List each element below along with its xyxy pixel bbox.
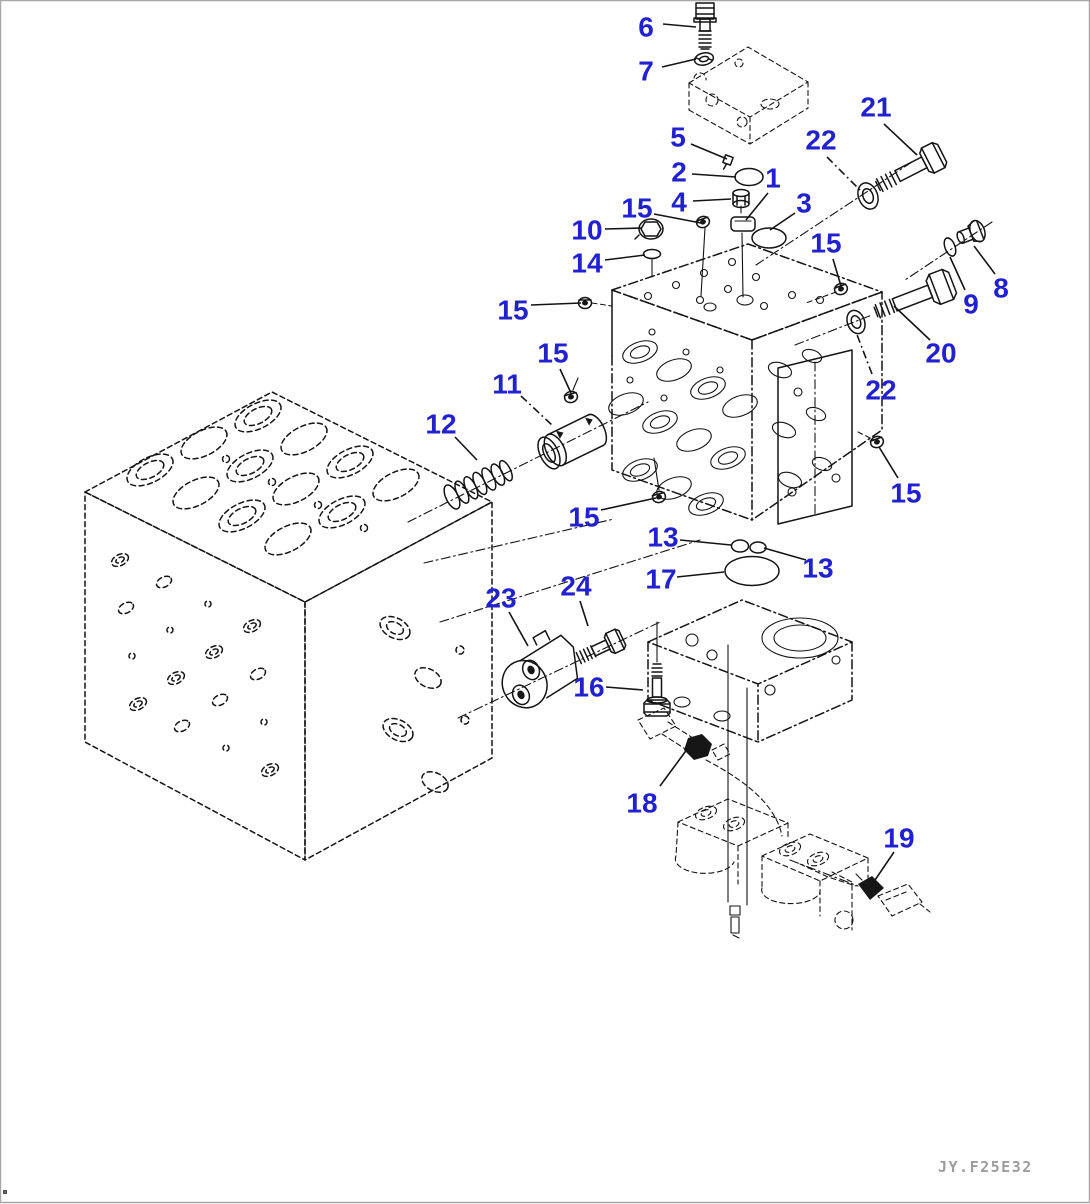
- o-ring-3: [752, 228, 786, 248]
- spool-bore: [720, 390, 761, 421]
- callout-15: 15: [568, 498, 656, 533]
- spool-bore: [688, 372, 729, 403]
- port-ring: [314, 490, 370, 535]
- set-screw-15: [651, 490, 666, 504]
- port-ring: [122, 448, 178, 493]
- port-hole: [211, 692, 230, 708]
- port-hole: [376, 612, 414, 644]
- connector-19: [856, 874, 884, 900]
- callout-number: 22: [805, 125, 836, 156]
- callout-11: 11: [492, 369, 553, 427]
- port-hole: [173, 718, 192, 734]
- callout-24: 24: [560, 571, 592, 627]
- reference-valve-block-phantom: [85, 392, 492, 860]
- port-hole: [259, 761, 280, 779]
- port-hole: [811, 455, 834, 473]
- page-corner-mark: [3, 1190, 7, 1194]
- bolt-20: [870, 268, 958, 327]
- callout-19: 19: [871, 823, 915, 887]
- port-ring: [214, 494, 270, 539]
- washer-7: [693, 51, 714, 67]
- spring-12: [441, 457, 516, 511]
- bushing-4: [733, 190, 749, 208]
- port-ring: [168, 471, 224, 516]
- callout-number: 15: [621, 193, 652, 224]
- port-hole: [204, 600, 212, 608]
- callout-number: 9: [963, 289, 979, 320]
- sleeve-11: [533, 411, 610, 472]
- callout-13: 13: [647, 522, 731, 553]
- port-hole: [117, 600, 136, 616]
- port-hole: [411, 664, 444, 693]
- bolt-24: [574, 628, 627, 668]
- parts-diagram-page: 6721225213415101415892015221511121515131…: [0, 0, 1090, 1204]
- fitting-18-hex: [684, 734, 712, 760]
- callout-number: 13: [802, 553, 833, 584]
- bolt-6: [694, 3, 716, 49]
- port-hole: [128, 652, 136, 660]
- port-hole: [379, 714, 417, 746]
- callout-number: 14: [571, 248, 603, 279]
- callout-16: 16: [573, 672, 643, 703]
- o-ring-17: [725, 557, 779, 586]
- callout-number: 15: [537, 338, 568, 369]
- port-ring: [276, 417, 332, 462]
- spool-bore: [708, 442, 749, 473]
- port-hole: [766, 359, 793, 380]
- top-cover-plate: [689, 47, 808, 144]
- drawing-number: JY.F25E32: [938, 1158, 1033, 1176]
- port-ring: [368, 463, 424, 508]
- port-hole: [805, 405, 828, 423]
- port-hole: [222, 744, 230, 752]
- set-screw-15: [869, 435, 885, 450]
- callout-8: 8: [974, 246, 1009, 304]
- callout-number: 22: [865, 375, 896, 406]
- callout-number: 6: [638, 12, 654, 43]
- callout-number: 23: [485, 583, 516, 614]
- callout-6: 6: [638, 12, 696, 43]
- spool-bore: [674, 424, 715, 455]
- spool-bore: [654, 354, 695, 385]
- spool-bore: [620, 336, 661, 367]
- callout-number: 15: [810, 228, 841, 259]
- callout-15: 15: [537, 338, 571, 394]
- callout-20: 20: [894, 306, 957, 369]
- callout-number: 15: [497, 295, 528, 326]
- port-hole: [770, 419, 797, 440]
- callout-18: 18: [626, 748, 688, 819]
- callout-15: 15: [879, 447, 922, 509]
- callout-number: 15: [890, 478, 921, 509]
- callout-number: 5: [670, 122, 686, 153]
- port-ring: [176, 421, 232, 466]
- port-hole: [241, 617, 262, 635]
- port-ring: [222, 444, 278, 489]
- callout-number: 17: [645, 564, 676, 595]
- port-hole: [109, 551, 130, 569]
- o-rings-13: [732, 540, 767, 553]
- callout-number: 12: [425, 409, 456, 440]
- callout-7: 7: [638, 56, 696, 87]
- callout-1: 1: [746, 163, 781, 221]
- spool-bore: [640, 406, 681, 437]
- callout-number: 4: [671, 187, 687, 218]
- port-hole: [260, 718, 268, 726]
- cap-1: [731, 217, 755, 231]
- port-hole: [127, 695, 148, 713]
- callout-12: 12: [425, 409, 477, 461]
- callout-number: 1: [765, 163, 781, 194]
- callout-number: 21: [860, 92, 891, 123]
- callout-number: 24: [560, 571, 592, 602]
- callout-number: 2: [671, 157, 687, 188]
- callout-number: 10: [571, 215, 602, 246]
- pilot-valve-block: [648, 600, 852, 905]
- ring-2: [735, 169, 763, 186]
- callout-22: 22: [856, 332, 897, 406]
- page-frame: [1, 1, 1090, 1203]
- callout-3: 3: [770, 188, 812, 231]
- callout-15: 15: [497, 295, 581, 326]
- port-hole: [155, 574, 174, 590]
- callout-number: 19: [883, 823, 914, 854]
- small-bolt-phantom: [730, 906, 740, 938]
- callout-number: 15: [568, 502, 599, 533]
- callout-number: 16: [573, 672, 604, 703]
- washer-22-lower: [844, 308, 868, 336]
- callout-number: 7: [638, 56, 654, 87]
- port-ring: [268, 467, 324, 512]
- port-hole: [166, 626, 174, 634]
- callout-14: 14: [571, 248, 645, 279]
- callout-number: 11: [492, 369, 522, 400]
- port-hole: [455, 645, 466, 656]
- o-ring-9: [942, 236, 958, 257]
- callout-21: 21: [860, 92, 917, 156]
- callout-number: 20: [925, 338, 956, 369]
- port-hole: [249, 666, 268, 682]
- main-valve-body: [573, 206, 882, 662]
- callout-15: 15: [810, 228, 841, 287]
- port-hole: [165, 669, 186, 687]
- port-ring: [322, 440, 378, 485]
- o-ring-14: [644, 250, 661, 259]
- port-hole: [203, 643, 224, 661]
- port-ring: [260, 517, 316, 562]
- callout-15: 15: [621, 193, 701, 224]
- callout-22: 22: [805, 125, 860, 191]
- callout-number: 8: [993, 273, 1009, 304]
- callout-number: 3: [796, 188, 812, 219]
- callout-5: 5: [670, 122, 727, 160]
- assembly-stems: [573, 206, 874, 662]
- axis-lines: [408, 162, 992, 886]
- exploded-parts-diagram: 6721225213415101415892015221511121515131…: [0, 0, 1090, 1204]
- callout-2: 2: [671, 157, 736, 188]
- callouts: 6721225213415101415892015221511121515131…: [425, 12, 1008, 887]
- callout-number: 13: [647, 522, 678, 553]
- callout-4: 4: [671, 187, 731, 218]
- callout-17: 17: [645, 564, 724, 595]
- callout-number: 18: [626, 788, 657, 819]
